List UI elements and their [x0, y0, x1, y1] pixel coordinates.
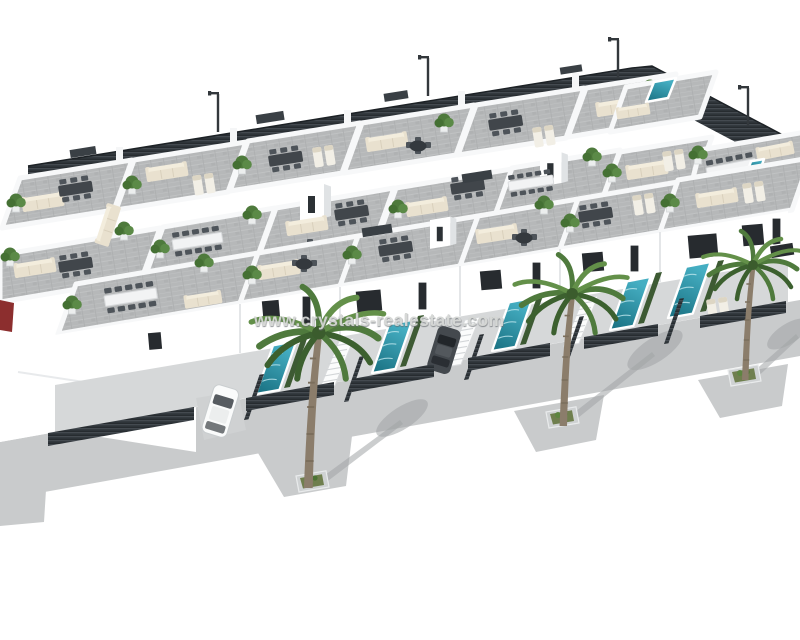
door: [418, 282, 427, 310]
street-lamp: [418, 55, 429, 96]
render-canvas: www.crystals-realestate.com: [0, 0, 800, 640]
car-red-edge: [0, 300, 14, 332]
watermark: www.crystals-realestate.com: [254, 310, 554, 331]
door: [630, 245, 639, 272]
window: [479, 269, 503, 291]
window: [147, 331, 163, 350]
street-lamp: [208, 91, 219, 132]
door: [532, 262, 541, 289]
